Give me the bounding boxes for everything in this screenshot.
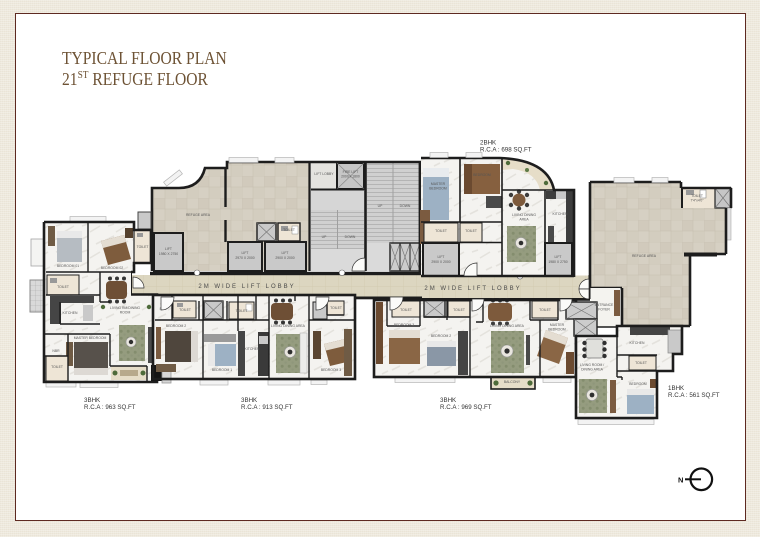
svg-text:FOYER: FOYER: [598, 308, 610, 312]
svg-text:3BHK: 3BHK: [84, 397, 101, 404]
svg-text:3BHK: 3BHK: [440, 397, 457, 404]
svg-text:BEDROOM 1: BEDROOM 1: [212, 368, 232, 372]
svg-text:TOILET: TOILET: [179, 308, 191, 312]
svg-text:BEDROOM: BEDROOM: [473, 173, 491, 177]
svg-text:LIVING DINING AREA: LIVING DINING AREA: [490, 324, 525, 328]
svg-text:KITCHEN: KITCHEN: [245, 347, 260, 351]
svg-text:FIRE LIFT: FIRE LIFT: [343, 170, 359, 174]
svg-text:TOILET: TOILET: [283, 228, 295, 232]
svg-text:R.C.A : 561 SQ.FT: R.C.A : 561 SQ.FT: [668, 392, 720, 399]
svg-text:ENTRANCE: ENTRANCE: [595, 303, 614, 307]
svg-text:BEDROOM 2: BEDROOM 2: [166, 324, 186, 328]
svg-text:TOILET: TOILET: [465, 229, 477, 233]
svg-text:NBR: NBR: [52, 349, 60, 353]
svg-text:TOILET: TOILET: [691, 194, 703, 198]
svg-text:3BHK: 3BHK: [241, 397, 258, 404]
svg-text:R.C.A : 969 SQ.FT: R.C.A : 969 SQ.FT: [440, 404, 492, 411]
svg-text:BEDROOM: BEDROOM: [548, 328, 566, 332]
svg-text:KITCHEN: KITCHEN: [630, 341, 645, 345]
svg-text:BEDROOM 01: BEDROOM 01: [57, 264, 79, 268]
svg-text:BEDROOM: BEDROOM: [429, 187, 447, 191]
svg-text:2970 X 2000: 2970 X 2000: [235, 256, 254, 260]
svg-text:DOWN: DOWN: [400, 204, 411, 208]
svg-text:TOILET: TOILET: [330, 306, 342, 310]
svg-text:2000 x 1800: 2000 x 1800: [341, 175, 360, 179]
svg-text:7'4"x4'0": 7'4"x4'0": [691, 199, 705, 203]
svg-text:LIFT LOBBY: LIFT LOBBY: [314, 172, 334, 176]
svg-text:R.C.A : 698 SQ.FT: R.C.A : 698 SQ.FT: [480, 147, 532, 154]
svg-text:LIVING DINING AREA: LIVING DINING AREA: [271, 324, 306, 328]
svg-text:ROOM: ROOM: [120, 311, 131, 315]
svg-text:2BHK: 2BHK: [480, 140, 497, 147]
svg-text:KITCHEN: KITCHEN: [63, 311, 78, 315]
svg-text:TOILET: TOILET: [635, 361, 647, 365]
svg-text:1980 X 2750: 1980 X 2750: [548, 260, 567, 264]
svg-text:1BHK: 1BHK: [668, 385, 685, 392]
svg-text:2900 X 2000: 2900 X 2000: [275, 256, 294, 260]
svg-text:UP: UP: [378, 204, 383, 208]
svg-text:MASTER: MASTER: [550, 323, 565, 327]
svg-text:N: N: [678, 476, 683, 485]
svg-text:BEDROOM 02: BEDROOM 02: [101, 266, 123, 270]
svg-text:LIFT: LIFT: [242, 251, 249, 255]
svg-text:TOILET: TOILET: [57, 285, 69, 289]
svg-text:BEDROOM 3: BEDROOM 3: [394, 323, 414, 327]
svg-text:AREA: AREA: [519, 218, 529, 222]
svg-text:TOILET: TOILET: [539, 308, 551, 312]
svg-text:LIVING ROOM /: LIVING ROOM /: [580, 363, 605, 367]
svg-text:REFUGE AREA: REFUGE AREA: [632, 254, 657, 258]
svg-text:2M WIDE LIFT LOBBY: 2M WIDE LIFT LOBBY: [424, 286, 521, 292]
svg-text:DINING AREA: DINING AREA: [581, 368, 604, 372]
svg-text:LIFT: LIFT: [282, 251, 289, 255]
svg-text:BALCONY: BALCONY: [504, 380, 521, 384]
svg-text:R.C.A : 963 SQ.FT: R.C.A : 963 SQ.FT: [84, 404, 136, 411]
svg-text:1980 X 2750: 1980 X 2750: [159, 252, 178, 256]
svg-text:LIVING DINING: LIVING DINING: [512, 213, 536, 217]
svg-text:KITCHEN: KITCHEN: [553, 212, 568, 216]
svg-text:DOWN: DOWN: [345, 235, 356, 239]
svg-text:TOILET: TOILET: [51, 365, 63, 369]
svg-text:TOILET: TOILET: [137, 245, 149, 249]
svg-text:LIVING RM/DINING: LIVING RM/DINING: [110, 306, 141, 310]
svg-text:REFUGE AREA: REFUGE AREA: [186, 213, 211, 217]
svg-text:UP: UP: [322, 235, 327, 239]
svg-text:LIFT: LIFT: [165, 247, 172, 251]
svg-text:TOILET: TOILET: [236, 309, 248, 313]
svg-text:TOILET: TOILET: [435, 229, 447, 233]
svg-text:LIFT: LIFT: [555, 255, 562, 259]
svg-text:2900 X 2000: 2900 X 2000: [431, 260, 450, 264]
svg-text:TOILET: TOILET: [400, 308, 412, 312]
svg-text:BEDROOM: BEDROOM: [629, 382, 647, 386]
svg-text:BEDROOM 3: BEDROOM 3: [321, 368, 341, 372]
svg-text:R.C.A : 913 SQ.FT: R.C.A : 913 SQ.FT: [241, 404, 293, 411]
svg-text:BEDROOM 2: BEDROOM 2: [431, 334, 451, 338]
svg-text:MASTER BEDROOM: MASTER BEDROOM: [74, 336, 107, 340]
svg-text:TOILET: TOILET: [453, 308, 465, 312]
svg-text:LIFT: LIFT: [438, 255, 445, 259]
svg-text:MASTER: MASTER: [431, 182, 446, 186]
svg-text:2M WIDE LIFT LOBBY: 2M WIDE LIFT LOBBY: [198, 284, 295, 290]
